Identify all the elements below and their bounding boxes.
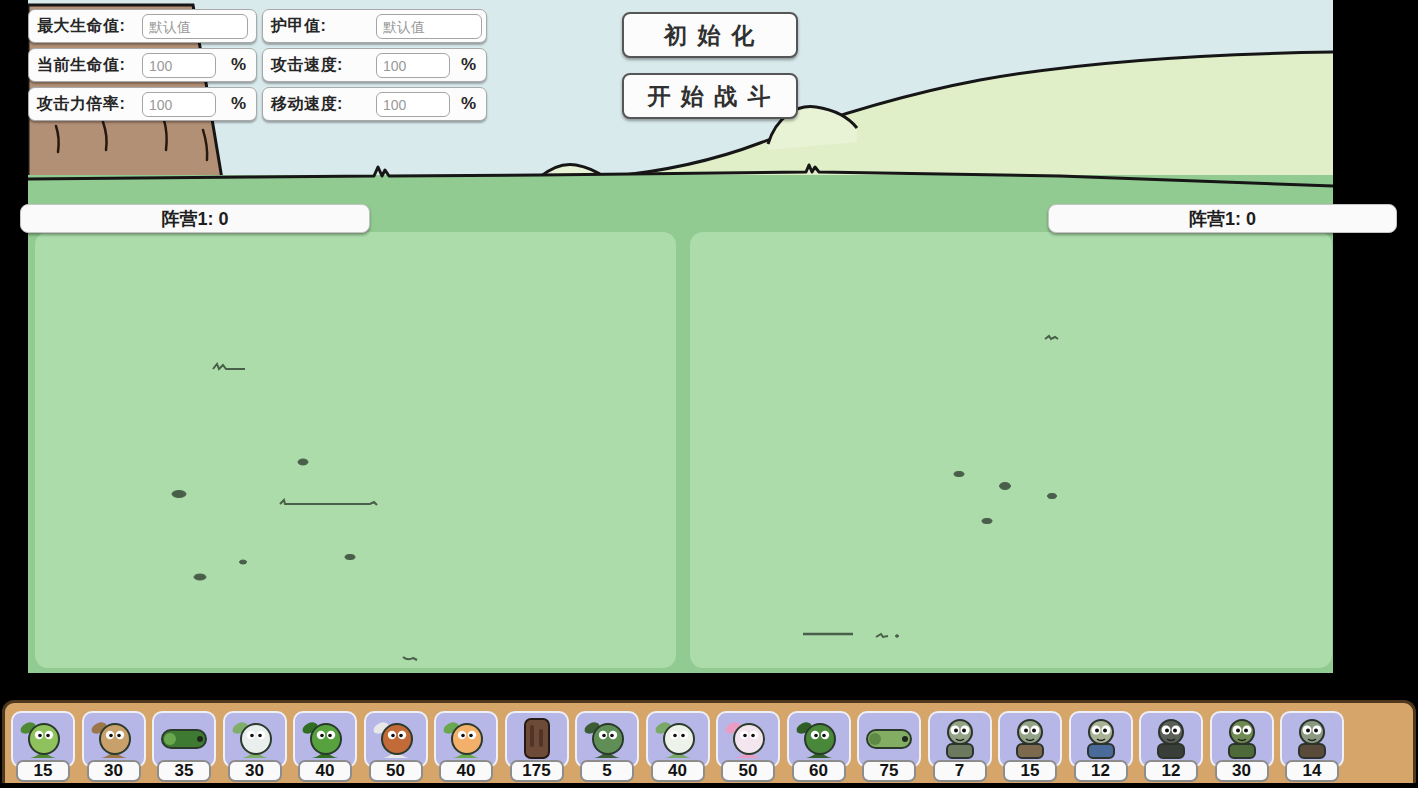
attack-speed-label: 攻击速度: [271, 55, 343, 76]
bean-icon [579, 716, 635, 760]
bonk-choy-icon [297, 716, 353, 760]
faction1-score: 阵营1: 0 [161, 207, 228, 231]
wallnut-icon [86, 716, 142, 760]
unit-cost-label: 14 [1285, 760, 1339, 782]
unit-cost-label: 40 [298, 760, 352, 782]
unit-card[interactable]: 50 [716, 711, 780, 782]
unit-cost-label: 30 [228, 760, 282, 782]
unit-cost-label: 35 [157, 760, 211, 782]
faction2-scorebar: 阵营1: 0 [1048, 204, 1397, 233]
armor-input[interactable] [376, 14, 482, 39]
faction1-scorebar: 阵营1: 0 [20, 204, 370, 233]
cap-zombie-icon [1073, 716, 1129, 760]
percent-suffix: % [231, 55, 246, 75]
battle-simulator-screen: 阵营1: 0 阵营1: 0 最大生命值: 当前生命值: % 攻击力倍率: % 护… [0, 0, 1418, 788]
unit-card-list: 15 30 [11, 711, 1344, 782]
unit-cost-label: 75 [862, 760, 916, 782]
stat-row-attack-multiplier: 攻击力倍率: % [28, 87, 257, 121]
soldier-zombie-icon [1214, 716, 1270, 760]
current-hp-label: 当前生命值: [37, 55, 125, 76]
unit-card[interactable]: 75 [857, 711, 921, 782]
unit-card[interactable]: 175 [505, 711, 569, 782]
tv-zombie-icon [1143, 716, 1199, 760]
battlefield-left[interactable] [35, 232, 676, 668]
initialize-button[interactable]: 初 始 化 [622, 12, 798, 58]
attack-speed-input[interactable] [376, 53, 450, 78]
unit-cost-label: 30 [1215, 760, 1269, 782]
percent-suffix: % [231, 94, 246, 114]
sprout-icon [438, 716, 494, 760]
unit-cost-label: 50 [721, 760, 775, 782]
unit-card[interactable]: 40 [646, 711, 710, 782]
max-hp-input[interactable] [142, 14, 248, 39]
melon-icon [861, 716, 917, 760]
unit-card[interactable]: 12 [1069, 711, 1133, 782]
chomper-icon [791, 716, 847, 760]
unit-card[interactable]: 15 [998, 711, 1062, 782]
unit-cost-label: 40 [651, 760, 705, 782]
stat-row-armor: 护甲值: [262, 9, 487, 43]
armor-label: 护甲值: [271, 16, 326, 37]
ground-marks [690, 232, 1332, 668]
iceberg-lettuce-icon [227, 716, 283, 760]
stump-icon [509, 716, 565, 760]
mushroom-icon [720, 716, 776, 760]
unit-card[interactable]: 5 [575, 711, 639, 782]
flag-plant-icon [368, 716, 424, 760]
attack-multiplier-label: 攻击力倍率: [37, 94, 125, 115]
unit-cost-label: 30 [87, 760, 141, 782]
unit-card[interactable]: 15 [11, 711, 75, 782]
club-zombie-icon [1002, 716, 1058, 760]
unit-card[interactable]: 12 [1139, 711, 1203, 782]
pea-cannon-icon [156, 716, 212, 760]
unit-card[interactable]: 30 [1210, 711, 1274, 782]
stat-row-current-hp: 当前生命值: % [28, 48, 257, 82]
zombie-icon [932, 716, 988, 760]
unit-cost-label: 12 [1144, 760, 1198, 782]
unit-cost-label: 5 [580, 760, 634, 782]
percent-suffix: % [461, 55, 476, 75]
unit-cost-label: 175 [510, 760, 564, 782]
move-speed-label: 移动速度: [271, 94, 343, 115]
spear-zombie-icon [1284, 716, 1340, 760]
egg-plant-icon [650, 716, 706, 760]
unit-cost-label: 15 [16, 760, 70, 782]
move-speed-input[interactable] [376, 92, 450, 117]
battlefield-right[interactable] [690, 232, 1332, 668]
unit-card[interactable]: 7 [928, 711, 992, 782]
unit-cost-label: 7 [933, 760, 987, 782]
attack-multiplier-input[interactable] [142, 92, 216, 117]
unit-selection-bar: 15 30 [2, 700, 1416, 783]
unit-card[interactable]: 35 [152, 711, 216, 782]
unit-card[interactable]: 40 [434, 711, 498, 782]
faction2-score: 阵营1: 0 [1189, 207, 1256, 231]
unit-cost-label: 50 [369, 760, 423, 782]
percent-suffix: % [461, 94, 476, 114]
unit-card[interactable]: 40 [293, 711, 357, 782]
unit-card[interactable]: 60 [787, 711, 851, 782]
max-hp-label: 最大生命值: [37, 16, 125, 37]
unit-cost-label: 60 [792, 760, 846, 782]
unit-cost-label: 15 [1003, 760, 1057, 782]
peashooter-icon [15, 716, 71, 760]
stat-row-max-hp: 最大生命值: [28, 9, 257, 43]
unit-cost-label: 12 [1074, 760, 1128, 782]
unit-card[interactable]: 50 [364, 711, 428, 782]
current-hp-input[interactable] [142, 53, 216, 78]
stat-row-attack-speed: 攻击速度: % [262, 48, 487, 82]
unit-cost-label: 40 [439, 760, 493, 782]
start-battle-button[interactable]: 开 始 战 斗 [622, 73, 798, 119]
unit-card[interactable]: 30 [82, 711, 146, 782]
ground-marks [35, 232, 676, 668]
unit-card[interactable]: 14 [1280, 711, 1344, 782]
stat-row-move-speed: 移动速度: % [262, 87, 487, 121]
unit-card[interactable]: 30 [223, 711, 287, 782]
